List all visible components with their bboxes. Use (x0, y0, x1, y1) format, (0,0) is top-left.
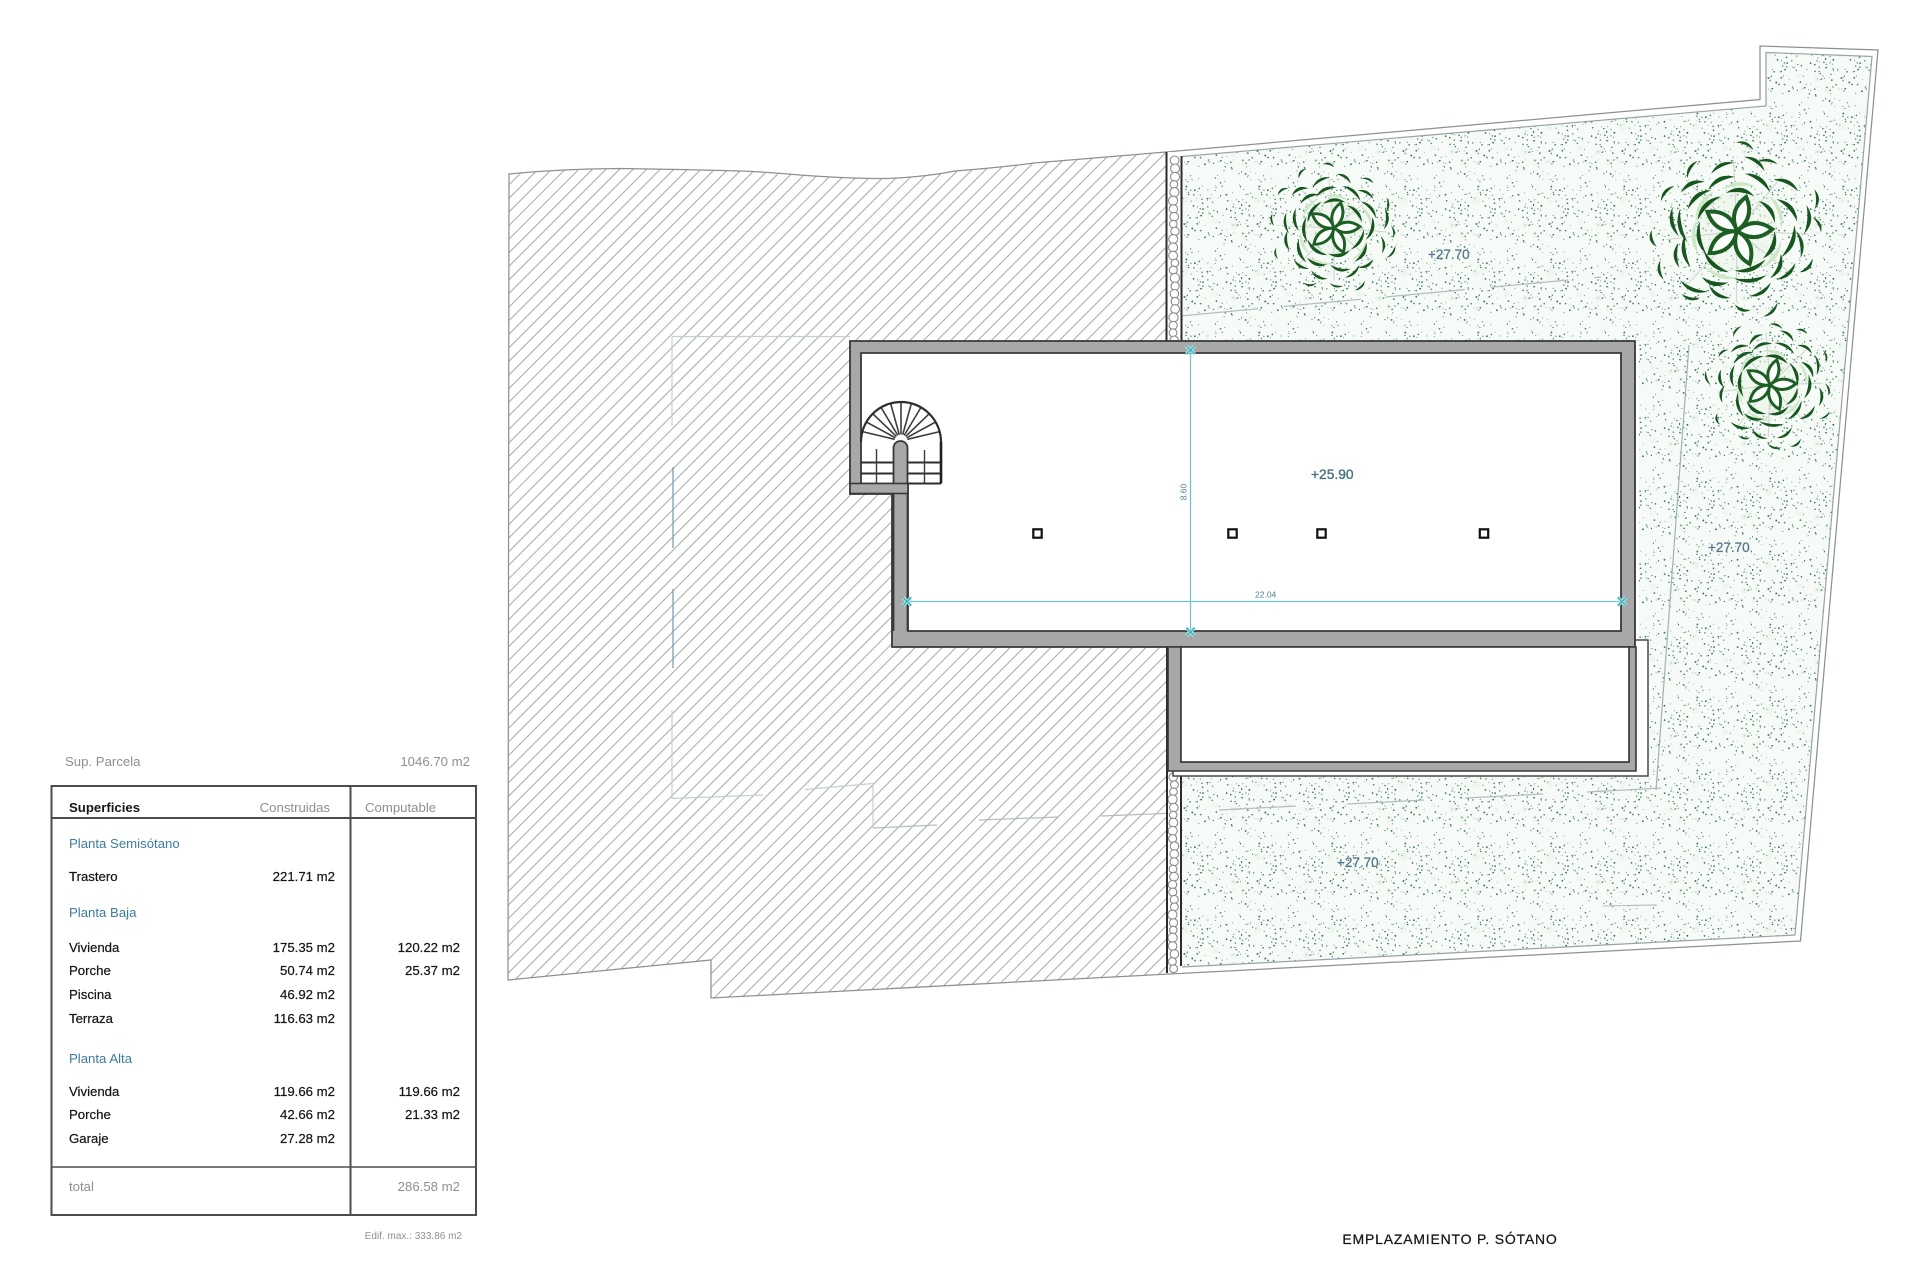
svg-text:+27.70: +27.70 (1428, 247, 1470, 262)
svg-text:42.66 m2: 42.66 m2 (280, 1107, 335, 1122)
svg-text:Planta Alta: Planta Alta (69, 1051, 133, 1066)
svg-text:Edif. max.: 333.86 m2: Edif. max.: 333.86 m2 (365, 1231, 463, 1242)
svg-text:Garaje: Garaje (69, 1131, 109, 1146)
svg-text:Porche: Porche (69, 1107, 111, 1122)
svg-text:8.60: 8.60 (1179, 483, 1189, 500)
svg-text:Superficies: Superficies (69, 800, 140, 815)
svg-text:27.28 m2: 27.28 m2 (280, 1131, 335, 1146)
svg-text:119.66 m2: 119.66 m2 (274, 1084, 335, 1099)
svg-text:EMPLAZAMIENTO P. SÓTANO: EMPLAZAMIENTO P. SÓTANO (1342, 1231, 1557, 1247)
svg-text:25.37 m2: 25.37 m2 (405, 963, 460, 978)
svg-text:total: total (69, 1179, 94, 1194)
svg-text:+27.70: +27.70 (1337, 855, 1379, 870)
svg-text:21.33 m2: 21.33 m2 (405, 1107, 460, 1122)
svg-text:Planta Semisótano: Planta Semisótano (69, 836, 180, 851)
svg-text:50.74 m2: 50.74 m2 (280, 963, 335, 978)
svg-text:Sup. Parcela: Sup. Parcela (65, 754, 141, 769)
svg-text:Computable: Computable (365, 800, 436, 815)
svg-text:+27.70: +27.70 (1708, 540, 1750, 555)
svg-text:1046.70 m2: 1046.70 m2 (400, 754, 470, 769)
svg-text:120.22 m2: 120.22 m2 (398, 940, 460, 955)
svg-text:Trastero: Trastero (69, 869, 118, 884)
svg-text:Construidas: Construidas (260, 800, 331, 815)
svg-text:175.35 m2: 175.35 m2 (273, 940, 335, 955)
svg-text:46.92 m2: 46.92 m2 (280, 987, 335, 1002)
svg-text:Vivienda: Vivienda (69, 1084, 120, 1099)
svg-text:116.63 m2: 116.63 m2 (274, 1011, 335, 1026)
svg-text:+25.90: +25.90 (1311, 467, 1354, 482)
svg-text:Terraza: Terraza (69, 1011, 114, 1026)
svg-text:Planta Baja: Planta Baja (69, 905, 137, 920)
svg-text:Porche: Porche (69, 963, 111, 978)
svg-text:119.66 m2: 119.66 m2 (399, 1084, 460, 1099)
svg-text:Vivienda: Vivienda (69, 940, 120, 955)
svg-text:22.04: 22.04 (1255, 590, 1277, 600)
svg-text:Piscina: Piscina (69, 987, 112, 1002)
svg-text:221.71 m2: 221.71 m2 (273, 869, 335, 884)
svg-text:286.58 m2: 286.58 m2 (398, 1179, 460, 1194)
